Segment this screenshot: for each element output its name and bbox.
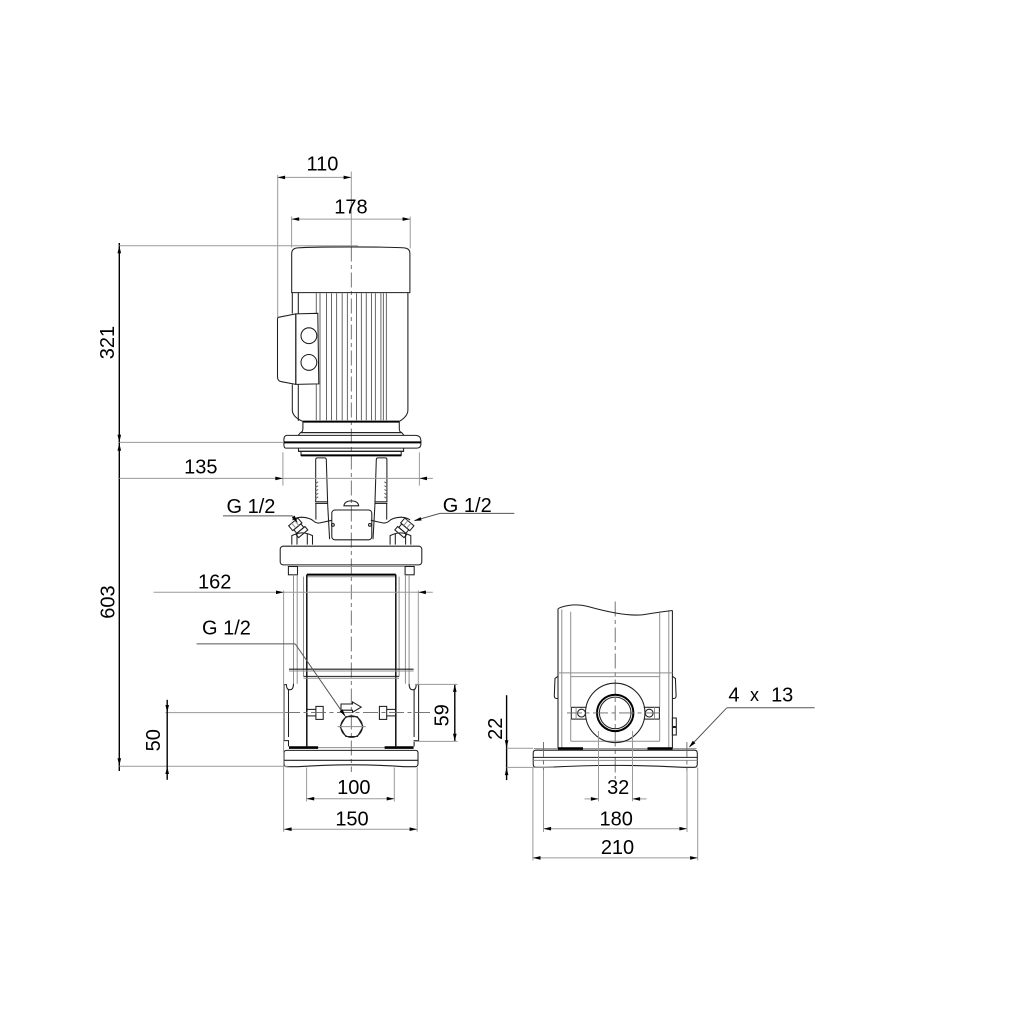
svg-text:32: 32	[607, 777, 629, 799]
svg-text:110: 110	[306, 154, 338, 176]
svg-text:100: 100	[337, 777, 370, 799]
svg-text:G 1/2: G 1/2	[227, 496, 276, 518]
svg-text:13: 13	[771, 685, 793, 707]
svg-text:50: 50	[143, 729, 165, 751]
svg-text:178: 178	[334, 197, 367, 219]
svg-text:603: 603	[98, 585, 120, 618]
svg-text:4: 4	[728, 685, 739, 707]
svg-text:180: 180	[600, 809, 633, 831]
svg-text:59: 59	[431, 704, 453, 726]
svg-text:135: 135	[184, 456, 217, 478]
svg-text:321: 321	[97, 326, 119, 359]
svg-text:210: 210	[601, 837, 634, 859]
svg-text:162: 162	[198, 571, 231, 593]
svg-text:150: 150	[335, 809, 368, 831]
svg-text:x: x	[750, 685, 759, 705]
svg-text:G 1/2: G 1/2	[202, 617, 251, 639]
svg-text:22: 22	[485, 718, 507, 740]
